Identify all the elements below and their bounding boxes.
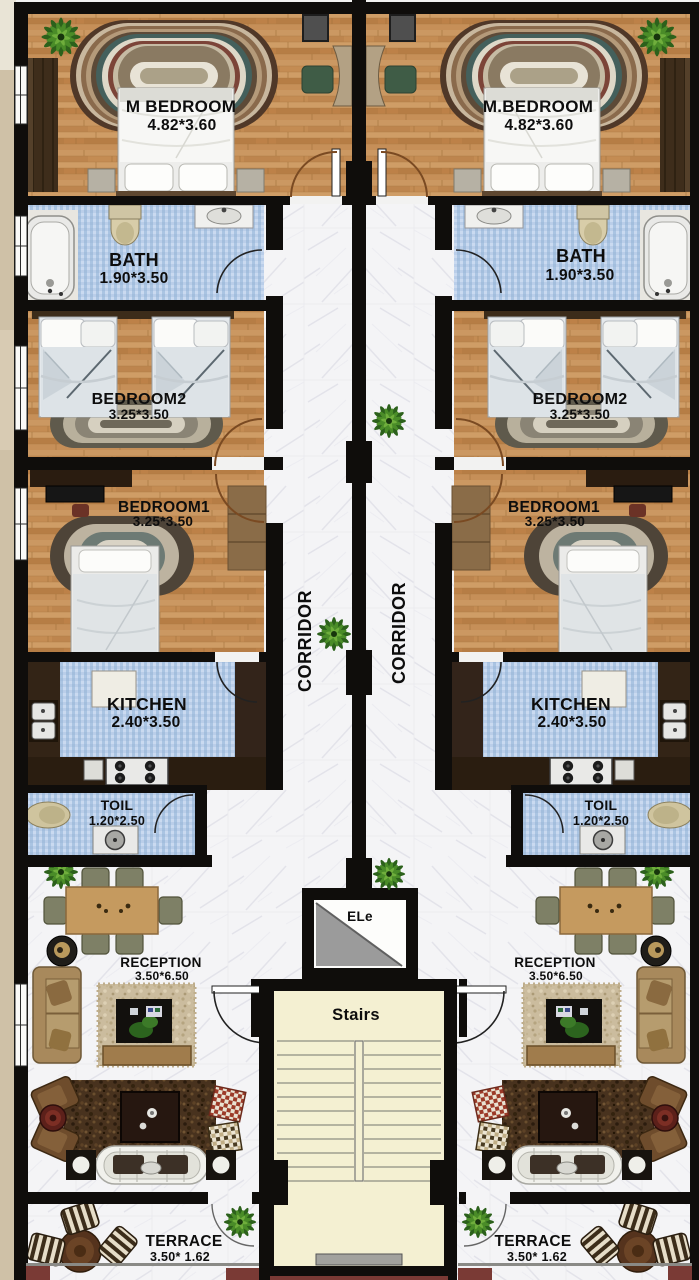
svg-text:2.40*3.50: 2.40*3.50	[537, 714, 606, 731]
svg-text:3.50*6.50: 3.50*6.50	[135, 969, 189, 983]
svg-text:1.20*2.50: 1.20*2.50	[573, 814, 629, 828]
svg-text:KITCHEN: KITCHEN	[531, 694, 611, 714]
svg-text:BATH: BATH	[556, 246, 606, 266]
svg-text:TERRACE: TERRACE	[145, 1233, 222, 1250]
svg-text:3.50* 1.62: 3.50* 1.62	[507, 1250, 567, 1264]
svg-text:KITCHEN: KITCHEN	[107, 694, 187, 714]
svg-text:BATH: BATH	[109, 250, 159, 270]
svg-text:BEDROOM2: BEDROOM2	[92, 391, 187, 408]
svg-text:1.20*2.50: 1.20*2.50	[89, 814, 145, 828]
svg-text:M BEDROOM: M BEDROOM	[126, 97, 236, 116]
svg-text:RECEPTION: RECEPTION	[514, 955, 595, 970]
svg-text:4.82*3.60: 4.82*3.60	[504, 117, 573, 134]
svg-text:3.25*3.50: 3.25*3.50	[525, 514, 586, 529]
svg-text:3.25*3.50: 3.25*3.50	[109, 407, 170, 422]
svg-text:BEDROOM2: BEDROOM2	[533, 391, 628, 408]
svg-text:3.50* 1.62: 3.50* 1.62	[150, 1250, 210, 1264]
svg-text:TOIL: TOIL	[101, 797, 134, 813]
svg-text:M.BEDROOM: M.BEDROOM	[483, 97, 593, 116]
svg-text:Stairs: Stairs	[332, 1006, 380, 1024]
svg-text:4.82*3.60: 4.82*3.60	[147, 117, 216, 134]
svg-text:CORRIDOR: CORRIDOR	[295, 590, 315, 692]
svg-text:2.40*3.50: 2.40*3.50	[111, 714, 180, 731]
svg-text:3.50*6.50: 3.50*6.50	[529, 969, 583, 983]
svg-text:1.90*3.50: 1.90*3.50	[99, 270, 168, 287]
svg-text:CORRIDOR: CORRIDOR	[389, 582, 409, 684]
svg-text:1.90*3.50: 1.90*3.50	[545, 267, 614, 284]
svg-text:TOIL: TOIL	[585, 797, 618, 813]
svg-text:ELe: ELe	[347, 909, 373, 924]
svg-text:3.25*3.50: 3.25*3.50	[133, 514, 194, 529]
svg-text:3.25*3.50: 3.25*3.50	[550, 407, 611, 422]
svg-text:TERRACE: TERRACE	[494, 1233, 571, 1250]
svg-text:RECEPTION: RECEPTION	[120, 955, 201, 970]
